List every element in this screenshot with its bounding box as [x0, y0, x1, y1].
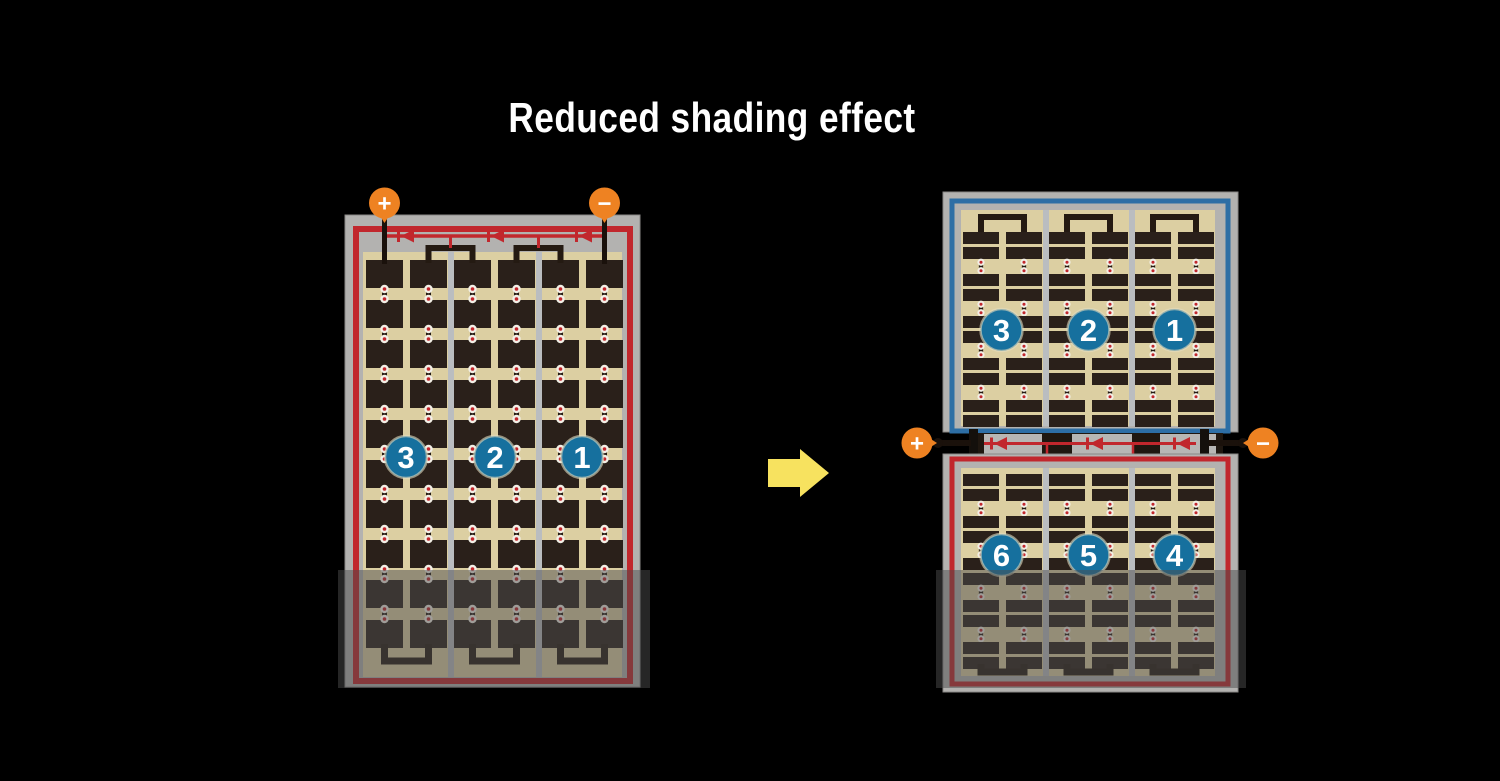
half-cut-cell	[1092, 289, 1128, 301]
solar-cell	[498, 540, 535, 568]
solar-cell	[586, 260, 623, 288]
terminal-label: +	[910, 431, 924, 458]
half-cut-cell	[1049, 400, 1085, 412]
half-cut-cell	[963, 247, 999, 259]
half-cut-cell	[963, 232, 999, 244]
half-cut-cell	[1006, 289, 1042, 301]
half-cut-cell	[1092, 373, 1128, 385]
half-cut-cell	[1092, 516, 1128, 528]
shading-effect-diagram: +−321321+−654	[0, 0, 1500, 781]
solar-cell	[542, 260, 579, 288]
half-cut-cell	[1135, 474, 1171, 486]
half-cut-cell	[1049, 373, 1085, 385]
string-number-badge: 2	[474, 436, 516, 478]
solar-cell	[498, 500, 535, 528]
half-cut-cell	[963, 400, 999, 412]
half-cut-cell	[1178, 516, 1214, 528]
solar-cell	[542, 340, 579, 368]
solar-cell	[366, 540, 403, 568]
half-cut-cell	[1178, 232, 1214, 244]
solar-cell	[542, 300, 579, 328]
half-cut-cell	[1178, 274, 1214, 286]
string-number-badge: 3	[385, 436, 427, 478]
half-cut-cell	[1178, 489, 1214, 501]
string-number-label: 1	[573, 440, 590, 475]
string-number-badge: 3	[981, 309, 1023, 351]
half-cut-cell	[1178, 247, 1214, 259]
half-cut-cell	[1178, 415, 1214, 427]
half-cut-cell	[1092, 474, 1128, 486]
half-cut-cell	[1092, 415, 1128, 427]
half-cut-cell	[1049, 289, 1085, 301]
string-number-label: 3	[993, 313, 1010, 348]
half-cut-cell	[963, 289, 999, 301]
half-cut-cell	[963, 516, 999, 528]
solar-cell	[498, 300, 535, 328]
half-cut-cell	[1006, 489, 1042, 501]
solar-cell	[542, 500, 579, 528]
half-cut-cell	[963, 415, 999, 427]
half-cut-cell	[1135, 274, 1171, 286]
terminal-lead	[382, 218, 387, 264]
half-cut-cell	[1135, 289, 1171, 301]
solar-cell	[454, 500, 491, 528]
solar-cell	[366, 340, 403, 368]
string-number-badge: 4	[1154, 534, 1196, 576]
half-cut-cell	[1178, 400, 1214, 412]
section-divider	[1043, 210, 1049, 426]
solar-cell	[366, 260, 403, 288]
half-cut-cell	[963, 358, 999, 370]
half-cut-cell	[1135, 232, 1171, 244]
half-cut-cell	[1006, 516, 1042, 528]
half-cut-cell	[1006, 274, 1042, 286]
half-cut-cell	[1092, 489, 1128, 501]
solar-cell	[454, 260, 491, 288]
half-cut-cell	[1092, 358, 1128, 370]
half-cut-cell	[1049, 489, 1085, 501]
string-number-badge: 1	[561, 436, 603, 478]
shading-overlay-right	[936, 570, 1246, 688]
solar-cell	[366, 380, 403, 408]
string-number-label: 5	[1080, 538, 1097, 573]
half-cut-cell	[1178, 358, 1214, 370]
half-cut-cell	[1006, 474, 1042, 486]
half-cut-cell	[1135, 516, 1171, 528]
half-cut-cell	[1135, 358, 1171, 370]
half-cut-cell	[1092, 232, 1128, 244]
half-cut-cell	[1049, 358, 1085, 370]
solar-cell	[410, 300, 447, 328]
half-cut-cell	[963, 373, 999, 385]
half-cut-cell	[1135, 373, 1171, 385]
string-number-badge: 6	[981, 534, 1023, 576]
half-cut-cell	[1178, 474, 1214, 486]
solar-cell	[586, 340, 623, 368]
solar-cell	[410, 380, 447, 408]
string-number-badge: 5	[1068, 534, 1110, 576]
half-cut-cell	[1135, 400, 1171, 412]
half-cut-cell	[1049, 247, 1085, 259]
half-cut-cell	[1135, 247, 1171, 259]
solar-cell	[498, 260, 535, 288]
right-module-top-half: 321	[943, 192, 1238, 432]
solar-cell	[542, 540, 579, 568]
shading-overlay-left	[338, 570, 650, 688]
solar-cell	[498, 340, 535, 368]
string-number-label: 6	[993, 538, 1010, 573]
solar-cell	[586, 540, 623, 568]
half-cut-cell	[1092, 274, 1128, 286]
half-cut-cell	[1178, 289, 1214, 301]
solar-cell	[498, 380, 535, 408]
half-cut-cell	[1049, 516, 1085, 528]
solar-cell	[410, 540, 447, 568]
half-cut-cell	[1135, 489, 1171, 501]
solar-cell	[366, 300, 403, 328]
section-divider	[1129, 210, 1135, 426]
half-cut-cell	[1006, 232, 1042, 244]
half-cut-cell	[963, 474, 999, 486]
solar-cell	[586, 500, 623, 528]
solar-cell	[586, 380, 623, 408]
solar-cell	[410, 340, 447, 368]
half-cut-cell	[963, 274, 999, 286]
solar-cell	[410, 260, 447, 288]
string-number-badge: 1	[1154, 309, 1196, 351]
terminal-label: −	[597, 191, 611, 218]
string-number-label: 2	[486, 440, 503, 475]
solar-cell	[366, 500, 403, 528]
half-cut-cell	[1049, 274, 1085, 286]
minus-terminal-icon: −	[1243, 428, 1279, 459]
plus-terminal-icon: +	[902, 428, 938, 459]
transform-arrow-icon	[768, 449, 829, 497]
half-cut-cell	[963, 489, 999, 501]
string-number-label: 1	[1166, 313, 1183, 348]
half-cut-cell	[1092, 247, 1128, 259]
terminal-lead	[602, 218, 607, 264]
string-number-label: 4	[1166, 538, 1184, 573]
string-number-label: 3	[397, 440, 414, 475]
half-cut-cell	[1049, 474, 1085, 486]
solar-cell	[454, 300, 491, 328]
solar-cell	[454, 340, 491, 368]
half-cut-cell	[1006, 247, 1042, 259]
half-cut-cell	[1178, 373, 1214, 385]
half-cut-cell	[1135, 415, 1171, 427]
half-cut-cell	[1049, 232, 1085, 244]
solar-cell	[542, 380, 579, 408]
half-cut-cell	[1006, 415, 1042, 427]
terminal-label: −	[1256, 431, 1270, 458]
half-cut-cell	[1092, 400, 1128, 412]
solar-cell	[586, 300, 623, 328]
solar-cell	[410, 500, 447, 528]
terminal-label: +	[377, 191, 391, 218]
half-cut-cell	[1006, 373, 1042, 385]
solar-cell	[454, 540, 491, 568]
half-cut-cell	[1006, 358, 1042, 370]
half-cut-cell	[1006, 400, 1042, 412]
string-number-badge: 2	[1068, 309, 1110, 351]
solar-cell	[454, 380, 491, 408]
string-number-label: 2	[1080, 313, 1097, 348]
half-cut-cell	[1049, 415, 1085, 427]
